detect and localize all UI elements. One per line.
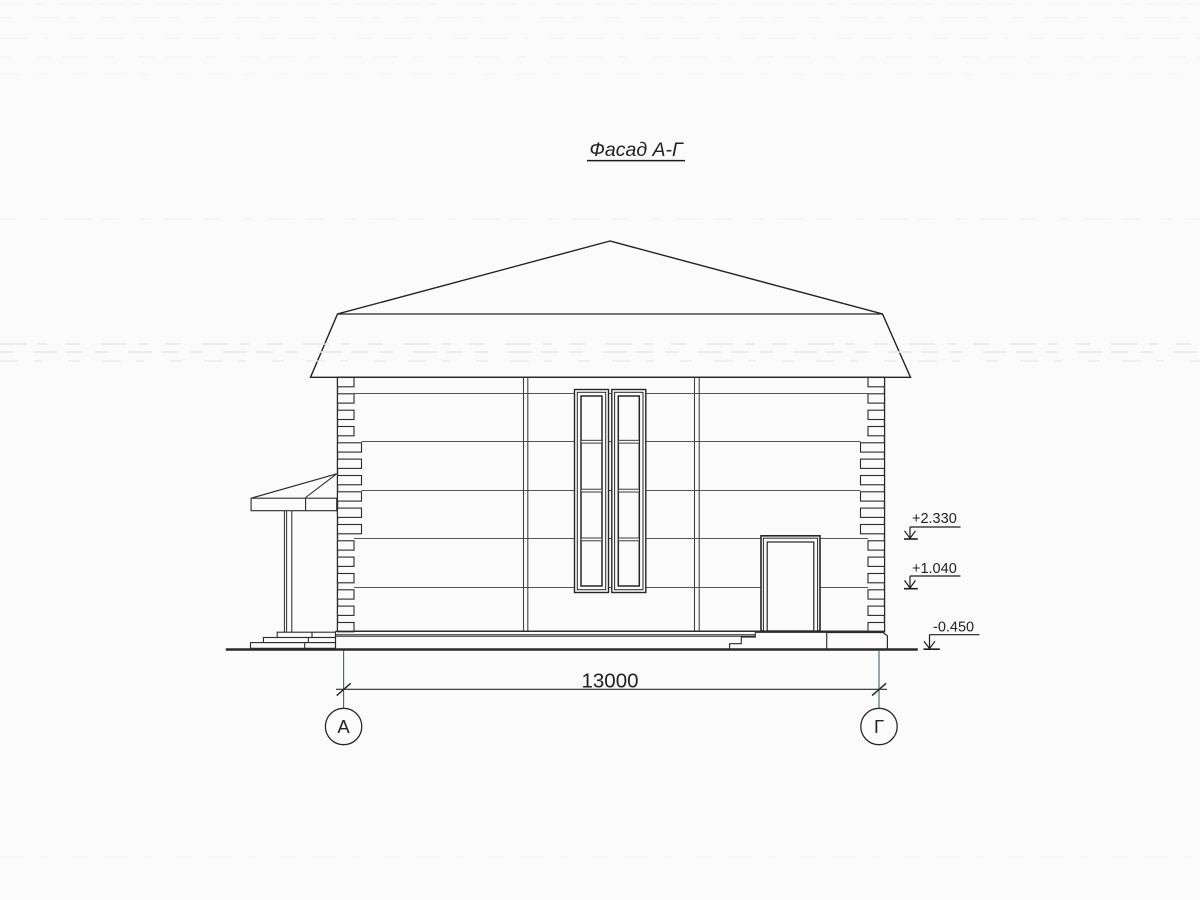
svg-text:-0.450: -0.450 — [933, 620, 974, 636]
svg-text:А: А — [337, 716, 350, 737]
svg-text:13000: 13000 — [581, 670, 638, 693]
svg-text:Фасад А-Г: Фасад А-Г — [589, 139, 684, 161]
svg-text:+1.040: +1.040 — [912, 561, 957, 577]
svg-text:+2.330: +2.330 — [912, 511, 957, 527]
svg-text:Г: Г — [874, 716, 884, 737]
